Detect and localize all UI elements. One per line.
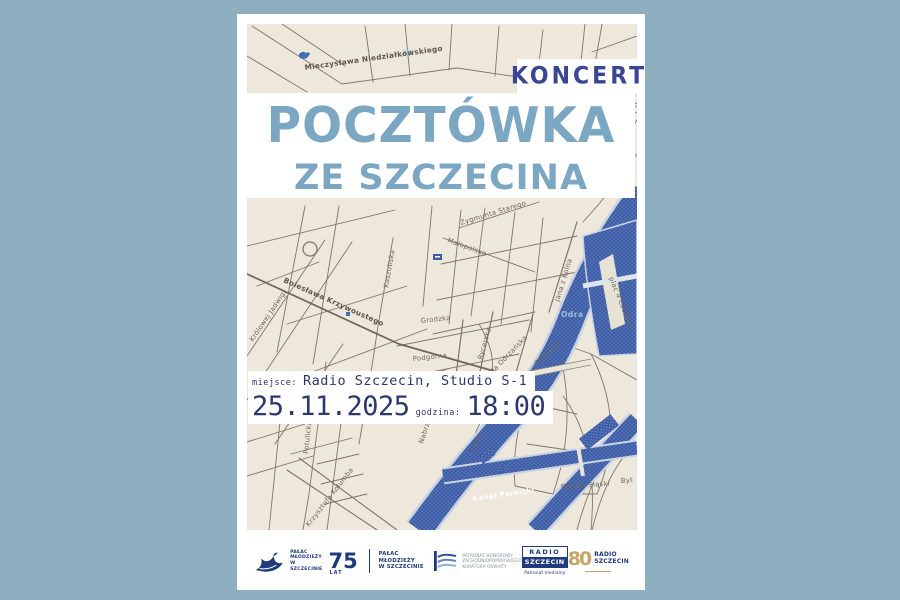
swan-icon xyxy=(253,548,286,574)
venue-line: miejsce: Radio Szczecin, Studio S-1 xyxy=(248,371,535,391)
radio-szczecin-box: RADIO SZCZECIN xyxy=(522,546,568,568)
80-number: 80 xyxy=(568,550,590,569)
gold-rule xyxy=(585,571,611,573)
sponsor-logo-row: PAŁAC MŁODZIEŻY W SZCZECINIE 75 LAT PAŁA… xyxy=(237,532,645,590)
title-line1-strip: POCZTÓWKA xyxy=(247,93,635,158)
75-logo-text: PAŁAC MŁODZIEŻY W SZCZECINIE xyxy=(379,551,435,571)
event-info-box: miejsce: Radio Szczecin, Studio S-1 25.1… xyxy=(248,371,553,424)
koncert-label: KONCERT xyxy=(511,63,647,90)
logo-text-line: W SZCZECINIE xyxy=(290,561,328,572)
date-time-line: 25.11.2025 godzina: 18:00 xyxy=(248,391,553,424)
radio-80-text: RADIO SZCZECIN xyxy=(594,552,629,566)
venue-label: miejsce: xyxy=(252,378,297,388)
radio-80-lockup: 80 RADIO SZCZECIN xyxy=(568,550,629,569)
event-time: 18:00 xyxy=(467,391,546,422)
koncert-badge: KONCERT xyxy=(517,59,641,93)
event-date: 25.11.2025 xyxy=(252,391,410,422)
lat-label: LAT xyxy=(329,571,342,575)
patronat-medialny-label: Patronat medialny xyxy=(524,571,565,576)
poster-title-line2: ZE SZCZECINA xyxy=(294,158,588,198)
river-label: Odra xyxy=(561,310,584,319)
logo-text-line: KURATORA OŚWIATY xyxy=(462,564,521,569)
venue-value: Radio Szczecin, Studio S-1 xyxy=(303,373,527,389)
75-lat-logo: 75 LAT PAŁAC MŁODZIEŻY W SZCZECINIE xyxy=(328,549,434,573)
logo-text-line: W SZCZECINIE xyxy=(379,564,435,571)
radio-label: RADIO xyxy=(523,547,567,557)
title-line2-strip: ZE SZCZECINA xyxy=(247,158,635,198)
patronat-logo: PATRONAT HONOROWY ZACHODNIOPOMORSKIEGO K… xyxy=(434,551,521,571)
wave-flag-icon xyxy=(434,551,458,571)
concert-poster: Mieczysława Niedziałkowskiego Zygmunta S… xyxy=(237,14,645,590)
szczecin-label: SZCZECIN xyxy=(523,557,567,567)
poster-title-line1: POCZTÓWKA xyxy=(267,97,616,155)
palac-logo-text: PAŁAC MŁODZIEŻY W SZCZECINIE xyxy=(290,550,328,573)
palac-mlodziezy-logo: PAŁAC MŁODZIEŻY W SZCZECINIE xyxy=(253,548,328,574)
time-label: godzina: xyxy=(416,408,461,418)
street-label: Byt xyxy=(621,476,634,485)
patronat-text: PATRONAT HONOROWY ZACHODNIOPOMORSKIEGO K… xyxy=(462,553,521,569)
logo-text-line: SZCZECIN xyxy=(594,559,629,566)
75-number: 75 LAT xyxy=(328,553,357,570)
logo-text-line: PAŁAC MŁODZIEŻY xyxy=(379,551,435,564)
radio-szczecin-80-logo: 80 RADIO SZCZECIN xyxy=(568,550,629,573)
radio-szczecin-patron-logo: RADIO SZCZECIN Patronat medialny xyxy=(522,546,568,576)
divider xyxy=(369,549,370,573)
